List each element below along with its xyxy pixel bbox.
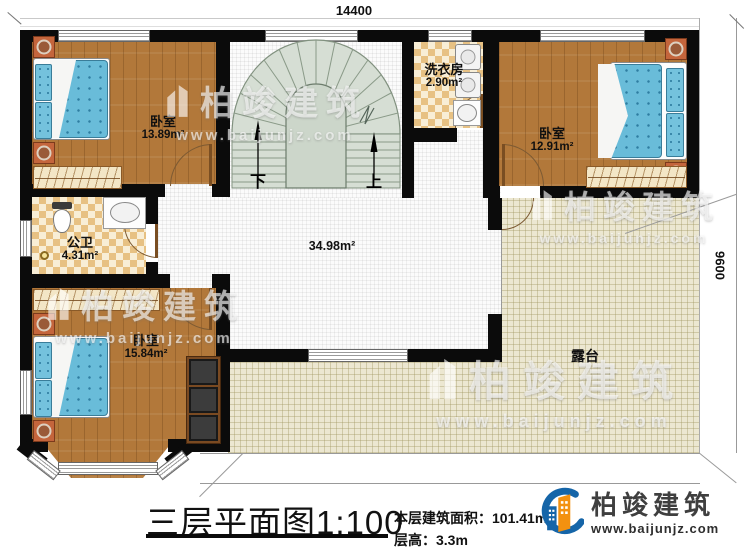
nightstand (33, 420, 55, 442)
wall-segment (488, 198, 502, 230)
dimension-top: 14400 (322, 3, 386, 18)
wardrobe (33, 166, 122, 189)
terrace-floor-right (501, 198, 699, 453)
pillow (35, 64, 52, 101)
floor-height-line: 层高：3.3m (394, 530, 468, 550)
parapet-bevel-line (699, 453, 736, 483)
bay-window (58, 462, 158, 475)
parapet-band-bottom (200, 453, 700, 484)
room-area: 15.84m² (96, 348, 196, 360)
sink-basin (457, 104, 477, 122)
stairs-up-label: 上 (362, 168, 386, 192)
bathroom-label: 公卫 4.31m² (40, 236, 120, 262)
nightstand (33, 313, 55, 335)
laundry-label: 洗衣房 2.90m² (404, 63, 484, 89)
window (20, 370, 32, 415)
window (428, 30, 472, 42)
wall-segment (402, 128, 457, 142)
pillow (35, 342, 52, 379)
wall-segment (212, 184, 230, 197)
door-leaf (209, 288, 212, 330)
stairs-down-label: 下 (246, 168, 270, 192)
room-area: 2.90m² (404, 77, 484, 89)
cabinet (189, 359, 218, 385)
logo-url: www.baijunjz.com (591, 521, 719, 536)
dimension-right: 9600 (713, 246, 728, 286)
floor-area-line: 本层建筑面积：101.41m² (394, 508, 552, 528)
terrace-floor-bottom (228, 362, 501, 453)
wardrobe (33, 289, 160, 311)
floor-height-label: 层高： (394, 532, 436, 548)
wall-segment (687, 30, 699, 198)
room-name: 卧室 (502, 127, 602, 141)
room-name: 公卫 (40, 236, 120, 250)
room-area: 12.91m² (502, 141, 602, 153)
door-leaf (209, 144, 212, 186)
room-name: 露台 (545, 349, 625, 364)
bedroom-tr-label: 卧室 12.91m² (502, 127, 602, 153)
room-name: 洗衣房 (404, 63, 484, 77)
cabinet (189, 415, 218, 441)
floor-area-label: 本层建筑面积： (394, 510, 492, 526)
wall-segment (20, 274, 170, 288)
wall-segment (228, 349, 308, 362)
pillow (35, 102, 52, 139)
parapet-line-top-1 (20, 18, 737, 19)
wall-segment (488, 314, 502, 351)
wall-segment (483, 30, 499, 186)
wall-segment (146, 197, 158, 224)
pillow (35, 380, 52, 417)
door-leaf (155, 224, 158, 258)
pillow (666, 68, 684, 112)
room-name: 卧室 (113, 115, 213, 129)
nightstand (665, 38, 687, 60)
terrace-step-edge (501, 230, 502, 314)
window (308, 349, 408, 362)
nightstand (33, 36, 55, 58)
room-area: 4.31m² (40, 250, 120, 262)
parapet-band-right (699, 18, 737, 453)
hall-area-label: 34.98m² (292, 240, 372, 253)
bedroom-tl-label: 卧室 13.89m² (113, 115, 213, 141)
wall-segment (216, 30, 230, 186)
room-area: 34.98m² (292, 240, 372, 253)
room-name: 卧室 (96, 334, 196, 348)
bedroom-bl-label: 卧室 15.84m² (96, 334, 196, 360)
toilet-bowl (53, 209, 71, 233)
terrace-label: 露台 (545, 349, 625, 364)
parapet-line-top-2 (20, 26, 737, 27)
window (540, 30, 645, 42)
company-logo: 柏竣建筑 www.baijunjz.com (536, 486, 719, 542)
logo-icon (536, 486, 584, 542)
window (58, 30, 150, 42)
nightstand (33, 142, 55, 164)
wardrobe (586, 166, 687, 188)
sink-basin (110, 202, 140, 223)
window (20, 220, 32, 257)
title-underline (146, 534, 388, 538)
room-area: 13.89m² (113, 129, 213, 141)
cabinet (189, 387, 218, 413)
floor-height-value: 3.3m (436, 532, 468, 548)
logo-brand: 柏竣建筑 (591, 492, 719, 518)
wall-segment (483, 186, 500, 198)
floor-plan-canvas: 下 上 卧室 13.89m² 洗衣房 2.90m² 卧室 12.91m² 公卫 … (0, 0, 750, 552)
pillow (666, 113, 684, 157)
toilet-tank (52, 202, 72, 209)
wall-segment (408, 349, 502, 362)
